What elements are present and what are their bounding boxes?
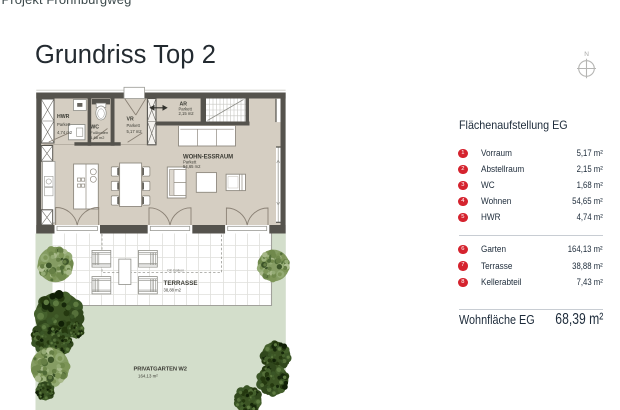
svg-text:N: N — [584, 51, 589, 58]
svg-text:5,17 m2: 5,17 m2 — [127, 129, 143, 134]
svg-text:1,68 m2: 1,68 m2 — [90, 135, 104, 140]
svg-text:PRIVATGARTEN W2: PRIVATGARTEN W2 — [134, 367, 187, 373]
svg-text:OK Balkon: OK Balkon — [167, 268, 184, 272]
svg-text:TERRASSE: TERRASSE — [164, 280, 198, 287]
svg-text:4,74 m2: 4,74 m2 — [57, 130, 73, 135]
svg-text:Parkett: Parkett — [57, 122, 71, 127]
svg-text:164,13 m²: 164,13 m² — [138, 374, 158, 379]
svg-text:2,15 m2: 2,15 m2 — [179, 111, 195, 116]
svg-text:54,65 m2: 54,65 m2 — [183, 164, 201, 169]
svg-text:HWR: HWR — [57, 114, 70, 120]
svg-text:VR: VR — [127, 117, 134, 123]
svg-text:Parkett: Parkett — [127, 123, 141, 128]
svg-text:38,88 m2: 38,88 m2 — [164, 288, 182, 293]
